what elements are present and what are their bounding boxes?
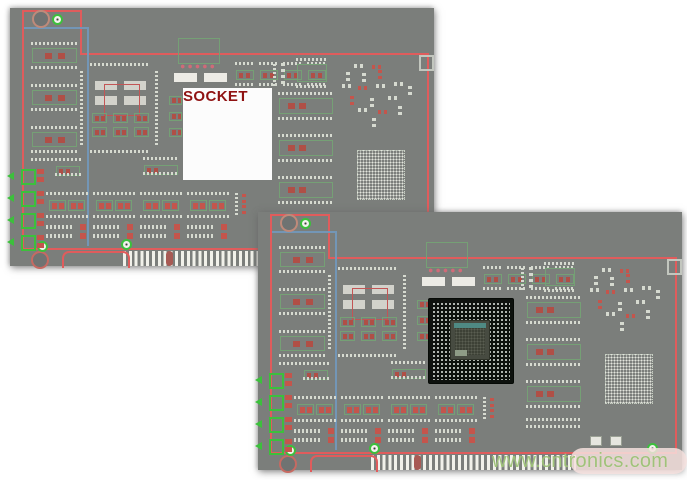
smd-pad	[610, 436, 622, 446]
top-connector-outline	[426, 242, 468, 268]
trace-blue-horizontal	[272, 231, 336, 233]
fiducial-via	[52, 14, 63, 25]
fiducial-via	[300, 218, 311, 229]
passive-footprint	[606, 290, 615, 294]
passive-group	[46, 222, 88, 242]
edge-connector-key-notch	[166, 251, 173, 266]
passive-group	[388, 426, 430, 446]
passive-footprint	[626, 314, 635, 318]
passive-footprint	[598, 300, 602, 309]
connector-pin-footprint	[14, 190, 46, 206]
passive-footprint	[626, 274, 630, 283]
mounting-hole-bottom-left	[279, 455, 297, 473]
qfp-footprint	[80, 63, 158, 153]
passive-footprint	[636, 300, 645, 304]
passive-footprint	[606, 312, 615, 316]
connector-pin-footprint	[14, 168, 46, 184]
die-marking	[454, 323, 486, 328]
smd-pad	[452, 277, 475, 286]
bga-footprint	[357, 150, 405, 200]
capacitor-footprint	[169, 96, 182, 105]
passive-footprint	[376, 84, 385, 88]
passive-footprint	[378, 110, 387, 114]
chip-die	[450, 320, 490, 360]
passive-group	[388, 396, 430, 422]
board-outline-top	[80, 53, 429, 55]
passive-footprint	[346, 72, 350, 81]
passive-footprint	[642, 286, 651, 290]
capacitor-footprint	[169, 128, 182, 137]
connector-pin-footprint	[262, 416, 294, 432]
board-outline-top	[328, 257, 677, 259]
connector-pin-footprint	[262, 394, 294, 410]
connector-pin-footprint	[262, 438, 294, 454]
passive-footprint	[378, 70, 382, 79]
smd-pad	[422, 277, 445, 286]
socket-label: SOCKET	[183, 88, 248, 105]
bga-chip	[428, 298, 514, 384]
passive-footprint	[590, 288, 599, 292]
passive-footprint	[372, 65, 381, 69]
passive-group	[294, 396, 336, 422]
ic-footprint	[279, 288, 326, 315]
bottom-connector-outline	[62, 251, 130, 268]
passive-group	[483, 396, 498, 420]
small-ic-footprint	[273, 60, 288, 88]
pcb-views-stage: SOCKET	[0, 0, 687, 480]
watermark: www.cntronics.com	[492, 450, 687, 474]
passive-group	[391, 361, 427, 379]
board-edge-notch	[419, 55, 434, 71]
passive-group	[303, 362, 329, 380]
passive-footprint	[620, 269, 629, 273]
connector-pin-footprint	[262, 372, 294, 388]
passive-group	[294, 426, 336, 446]
passive-footprint	[342, 84, 351, 88]
bottom-connector-outline	[310, 455, 378, 472]
connector-pin-footprint	[14, 234, 46, 250]
smd-pad	[204, 73, 227, 82]
board-outline-top-segment	[270, 214, 330, 216]
passive-group	[93, 222, 135, 242]
edge-connector-key-notch	[414, 455, 421, 470]
ic-footprint	[526, 380, 582, 408]
small-ic-footprint	[294, 58, 330, 88]
passive-footprint	[594, 276, 598, 285]
passive-group	[143, 157, 179, 175]
test-point-dots	[427, 268, 464, 273]
board-outline-top-segment	[22, 10, 82, 12]
ic-footprint	[279, 246, 326, 273]
passive-footprint	[350, 96, 354, 105]
mounting-hole-bottom-left	[31, 251, 49, 269]
ic-footprint	[31, 126, 78, 153]
test-point-dots	[179, 64, 216, 69]
passive-footprint	[656, 290, 660, 299]
trace-blue-horizontal	[24, 27, 88, 29]
die-marking	[455, 350, 467, 356]
cpu-socket-area: SOCKET	[183, 88, 272, 180]
small-ic-footprint	[542, 262, 578, 292]
mounting-hole-top-left	[32, 10, 50, 28]
passive-group	[187, 192, 229, 218]
board-outline-right	[675, 257, 677, 454]
connector-pin-footprint	[14, 212, 46, 228]
passive-footprint	[394, 82, 403, 86]
pcb-layout: SOCKET	[258, 212, 682, 470]
capacitor-footprint	[169, 112, 182, 121]
passive-group	[55, 158, 81, 176]
passive-group	[140, 222, 182, 242]
passive-footprint	[388, 96, 397, 100]
passive-group	[93, 192, 135, 218]
board-outline-step	[80, 10, 82, 55]
ic-footprint	[31, 42, 78, 69]
ic-footprint	[279, 330, 326, 357]
passive-group	[140, 192, 182, 218]
passive-footprint	[624, 288, 633, 292]
pin-row	[526, 425, 582, 428]
passive-group	[235, 192, 250, 216]
passive-footprint	[620, 322, 624, 331]
pin-row	[526, 418, 582, 421]
ic-footprint	[526, 296, 582, 324]
passive-footprint	[362, 73, 366, 82]
board-outline-step	[328, 214, 330, 259]
ic-footprint	[31, 84, 78, 111]
passive-footprint	[610, 277, 614, 286]
passive-footprint	[646, 310, 650, 319]
passive-group	[435, 426, 477, 446]
ic-footprint	[278, 92, 334, 120]
pcb-view-bga-chip: SOCKET	[258, 212, 682, 470]
top-connector-outline	[178, 38, 220, 64]
passive-footprint	[398, 106, 402, 115]
passive-footprint	[370, 98, 374, 107]
board-edge-notch	[667, 259, 682, 275]
passive-group	[341, 396, 383, 422]
qfp-footprint	[328, 267, 406, 357]
smd-pad	[174, 73, 197, 82]
passive-group	[46, 192, 88, 218]
passive-group	[483, 266, 503, 290]
passive-group	[187, 222, 229, 242]
passive-footprint	[372, 118, 376, 127]
small-ic-footprint	[521, 264, 536, 292]
passive-footprint	[358, 108, 367, 112]
passive-footprint	[618, 302, 622, 311]
passive-footprint	[358, 86, 367, 90]
bga-footprint	[605, 354, 653, 404]
ic-footprint	[278, 134, 334, 162]
ic-footprint	[278, 176, 334, 204]
ic-footprint	[526, 338, 582, 366]
mounting-hole-top-left	[280, 214, 298, 232]
smd-pad	[590, 436, 602, 446]
passive-footprint	[602, 268, 611, 272]
passive-footprint	[408, 86, 412, 95]
passive-group	[341, 426, 383, 446]
passive-group	[235, 62, 255, 86]
passive-group	[435, 396, 477, 422]
passive-footprint	[354, 64, 363, 68]
